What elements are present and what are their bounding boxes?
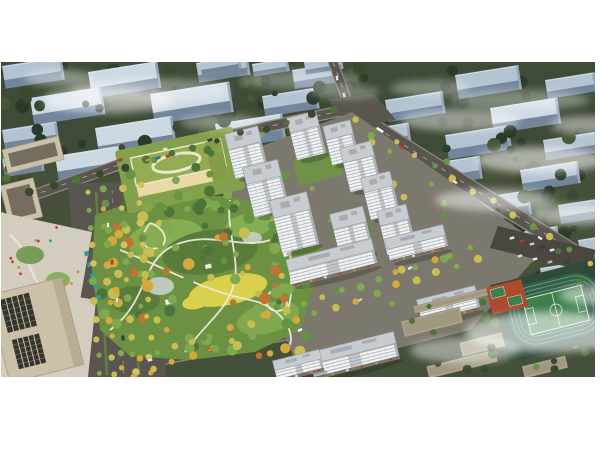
street-tree — [96, 170, 104, 178]
street-tree — [126, 315, 134, 323]
umbrella-dot — [70, 282, 73, 285]
street-tree — [50, 181, 59, 190]
street-tree — [207, 334, 213, 340]
vehicle — [107, 222, 110, 227]
street-tree — [93, 336, 99, 342]
street-tree — [237, 129, 244, 136]
vehicle — [111, 259, 114, 264]
mist-wisp — [400, 109, 520, 131]
street-tree — [189, 339, 195, 345]
street-tree — [169, 359, 175, 365]
street-tree — [89, 277, 97, 285]
mist-wisp — [310, 85, 380, 99]
vehicle — [116, 297, 119, 302]
street-tree — [171, 343, 178, 350]
street-tree — [454, 264, 460, 270]
street-tree — [121, 241, 128, 248]
street-tree — [89, 242, 95, 248]
street-tree — [103, 278, 111, 286]
street-tree — [101, 223, 107, 229]
street-tree — [564, 258, 571, 265]
street-tree — [248, 332, 256, 340]
umbrella-dot — [9, 257, 12, 260]
street-tree — [96, 353, 101, 358]
mist-wisp — [43, 87, 173, 113]
street-tree — [212, 345, 219, 352]
street-tree — [263, 126, 270, 133]
street-tree — [87, 208, 92, 213]
street-tree — [111, 371, 117, 377]
street-tree — [108, 354, 114, 360]
street-tree — [393, 269, 399, 275]
street-tree — [271, 323, 277, 329]
street-tree — [467, 245, 472, 250]
street-tree — [137, 219, 145, 227]
rendering-image — [0, 55, 600, 388]
street-tree — [413, 276, 421, 284]
street-tree — [566, 247, 572, 253]
street-tree — [140, 242, 145, 247]
street-tree — [110, 333, 115, 338]
street-tree — [330, 106, 338, 114]
mist-wisp — [25, 70, 95, 86]
street-tree — [474, 255, 482, 263]
street-tree — [85, 190, 90, 195]
umbrella-dot — [55, 226, 58, 229]
mist-wisp — [450, 90, 590, 110]
street-tree — [292, 316, 300, 324]
street-tree — [142, 277, 147, 282]
street-tree — [577, 278, 583, 284]
street-tree — [140, 255, 148, 263]
street-tree — [308, 110, 316, 118]
street-tree — [145, 297, 151, 303]
street-tree — [509, 212, 516, 219]
street-tree — [124, 277, 129, 282]
street-tree — [90, 297, 98, 305]
street-tree — [571, 266, 578, 273]
street-tree — [412, 153, 417, 158]
aerial-rendering-canvas — [0, 0, 600, 450]
street-tree — [119, 365, 124, 370]
mist-wisp — [390, 80, 470, 96]
umbrella-dot — [35, 239, 38, 242]
street-tree — [121, 164, 129, 172]
umbrella-dot — [11, 260, 14, 263]
street-tree — [97, 371, 102, 376]
street-tree — [100, 185, 107, 192]
street-tree — [352, 298, 358, 304]
street-tree — [214, 138, 219, 143]
umbrella-dot — [76, 270, 79, 273]
street-tree — [357, 283, 365, 291]
street-tree — [25, 188, 34, 197]
street-tree — [282, 306, 290, 314]
street-tree — [105, 317, 112, 324]
umbrella-dot — [17, 266, 20, 269]
vehicle — [122, 335, 125, 340]
street-tree — [130, 352, 135, 357]
street-tree — [88, 225, 94, 231]
street-tree — [90, 260, 97, 267]
street-tree — [432, 163, 437, 168]
street-tree — [128, 334, 135, 341]
street-tree — [120, 221, 127, 228]
street-tree — [150, 366, 157, 373]
street-tree — [263, 310, 271, 318]
street-tree — [432, 256, 439, 263]
street-tree — [108, 300, 114, 306]
street-tree — [189, 352, 197, 360]
mist-wisp — [180, 114, 260, 130]
street-tree — [93, 316, 100, 323]
street-tree — [311, 310, 317, 316]
street-tree — [284, 120, 290, 126]
street-tree — [247, 320, 252, 325]
street-tree — [319, 294, 325, 300]
street-tree — [555, 248, 561, 254]
street-tree — [447, 253, 453, 259]
street-tree — [229, 338, 235, 344]
street-tree — [588, 261, 594, 267]
street-tree — [352, 116, 358, 122]
umbrella-dot — [19, 272, 22, 275]
street-tree — [144, 314, 149, 319]
street-tree — [137, 355, 143, 361]
street-tree — [189, 145, 196, 152]
street-tree — [301, 301, 307, 307]
street-tree — [373, 290, 381, 298]
street-tree — [412, 265, 418, 271]
umbrella-dot — [49, 239, 52, 242]
street-tree — [546, 233, 553, 240]
street-tree — [227, 324, 234, 331]
mist-wisp — [410, 337, 520, 363]
street-tree — [104, 241, 112, 249]
street-tree — [119, 185, 127, 193]
page — [0, 0, 600, 450]
street-tree — [432, 268, 440, 276]
street-tree — [375, 276, 382, 283]
street-tree — [149, 335, 155, 341]
street-tree — [124, 294, 132, 302]
street-tree — [339, 287, 345, 293]
umbrella-dot — [37, 240, 40, 243]
street-tree — [138, 182, 144, 188]
street-tree — [123, 258, 130, 265]
street-tree — [392, 280, 400, 288]
street-tree — [136, 200, 142, 206]
street-tree — [332, 304, 339, 311]
street-tree — [104, 261, 112, 269]
mist-wisp — [435, 189, 555, 211]
street-tree — [72, 176, 81, 185]
street-tree — [530, 223, 537, 230]
street-tree — [394, 139, 399, 144]
street-tree — [119, 205, 125, 211]
street-tree — [101, 206, 106, 211]
mist-wisp — [475, 147, 600, 173]
street-tree — [155, 350, 161, 356]
